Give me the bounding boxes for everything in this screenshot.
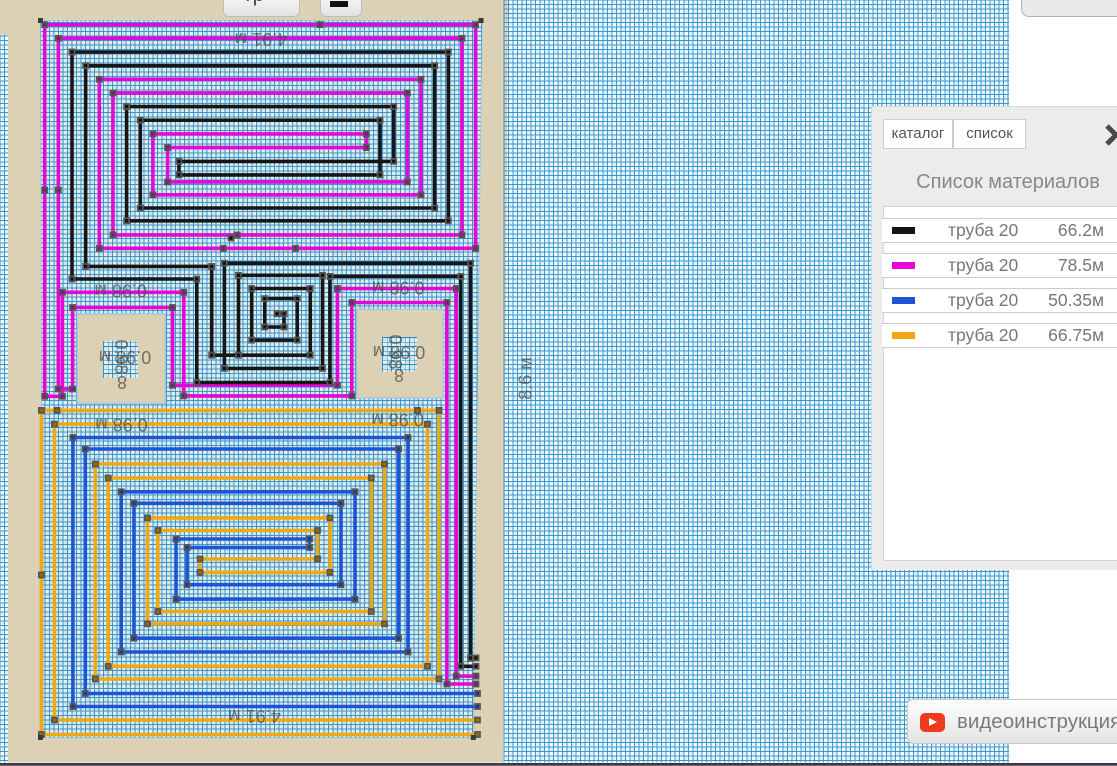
svg-text:0.98 м: 0.98 м: [94, 281, 146, 301]
svg-text:4.91 м: 4.91 м: [228, 706, 280, 726]
svg-text:0.98: 0.98: [111, 339, 131, 374]
svg-text:0.98: 0.98: [385, 334, 405, 369]
svg-text:4.91 м: 4.91 м: [235, 29, 287, 49]
svg-text:0.98 м: 0.98 м: [372, 278, 424, 298]
svg-text:0.98 м: 0.98 м: [371, 410, 423, 430]
svg-text:0.98 м: 0.98 м: [95, 415, 147, 435]
svg-text:8: 8: [394, 365, 404, 385]
svg-text:8: 8: [117, 372, 127, 392]
svg-text:8.6 м: 8.6 м: [516, 357, 536, 399]
